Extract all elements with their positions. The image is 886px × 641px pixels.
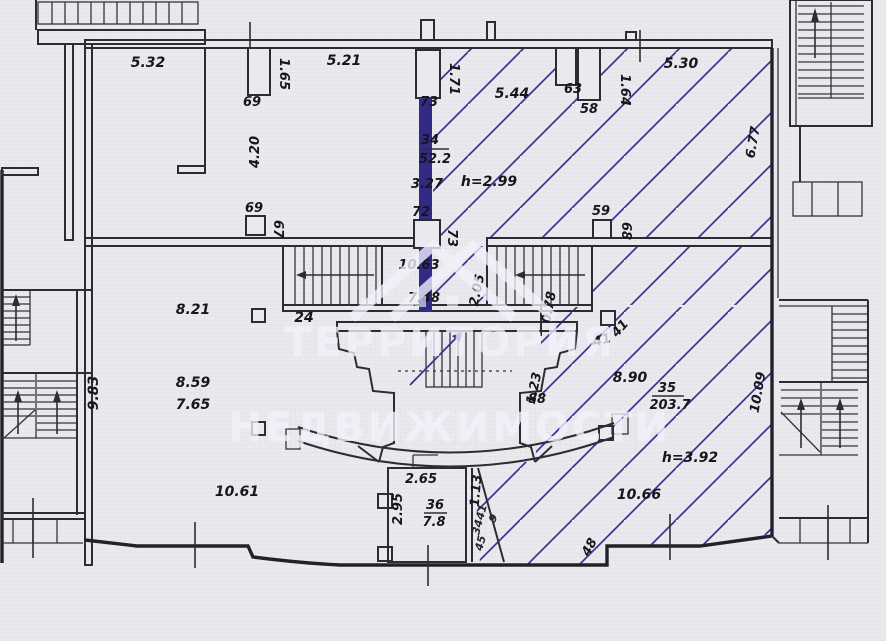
dimension-label: 1.64 bbox=[617, 74, 632, 106]
dimension-label: 5.21 bbox=[327, 53, 362, 69]
left-stair-lower-treads bbox=[2, 373, 77, 438]
room-area: 7.8 bbox=[422, 515, 445, 530]
dimension-label: 1.71 bbox=[446, 63, 461, 95]
room-dim: 7.65 bbox=[176, 397, 211, 413]
dimension-label: 1.65 bbox=[276, 58, 291, 90]
dimension-label: 4.20 bbox=[248, 136, 263, 169]
top-right-treads bbox=[798, 2, 864, 98]
column-59-68 bbox=[593, 220, 611, 238]
room-dim: 8.21 bbox=[176, 302, 211, 318]
room36-column bbox=[378, 547, 392, 561]
pilaster-label: 63 bbox=[564, 82, 582, 97]
ramp-arrow bbox=[296, 271, 306, 279]
room-dim: 8.90 bbox=[613, 370, 648, 386]
left-corridor-wall bbox=[65, 44, 73, 240]
column-label: 73 bbox=[444, 229, 459, 247]
mid-right-upper-treads bbox=[832, 314, 868, 378]
left-vestibule-cells bbox=[2, 519, 83, 543]
hatch-right-strip bbox=[592, 246, 772, 305]
vent-shaft bbox=[421, 20, 434, 40]
mid-wall-left bbox=[85, 238, 418, 246]
room36-column bbox=[378, 494, 392, 508]
column-73-top bbox=[416, 50, 440, 98]
room-dim: 10.66 bbox=[617, 487, 662, 503]
dimension-label: 5.44 bbox=[495, 86, 530, 102]
stair-up-arrow bbox=[14, 390, 22, 402]
column-label: 67 bbox=[270, 220, 285, 239]
right-vestibule bbox=[793, 182, 862, 216]
column-label: 69 bbox=[245, 201, 263, 216]
room-number: 35 bbox=[658, 381, 676, 396]
column-label: 68 bbox=[618, 222, 633, 240]
top-left-wall bbox=[38, 30, 205, 44]
room-dim: 10.61 bbox=[215, 484, 259, 500]
top-left-stair-treads bbox=[52, 2, 182, 24]
stair-up-arrow bbox=[797, 398, 805, 410]
dimension-label: 1.13 bbox=[468, 474, 486, 507]
top-left-stairs bbox=[38, 2, 198, 24]
ramp-arrow bbox=[515, 271, 525, 279]
column-label: 72 bbox=[412, 205, 430, 220]
mid-right-lower-treads bbox=[779, 382, 858, 455]
hall-column bbox=[252, 309, 265, 322]
room-dim: 8.59 bbox=[176, 375, 211, 391]
stair-up-arrow bbox=[836, 398, 844, 410]
watermark-line2: НЕДВИЖИМОСТИ bbox=[229, 405, 672, 451]
height-label: h=2.99 bbox=[461, 174, 517, 190]
left-wing bbox=[2, 44, 92, 565]
stair-up-arrow bbox=[53, 390, 61, 402]
column-69-67 bbox=[246, 216, 265, 235]
column-label: 59 bbox=[592, 204, 610, 219]
hall-left-wall bbox=[85, 44, 92, 565]
dimension-label: 3.27 bbox=[411, 177, 444, 192]
pilaster-label: 69 bbox=[243, 95, 261, 110]
column-label: 73 bbox=[420, 95, 438, 110]
room-number: 34 bbox=[421, 133, 439, 148]
dimension-label: 5.30 bbox=[664, 56, 699, 72]
right-wing bbox=[772, 0, 872, 560]
room-area: 52.2 bbox=[419, 152, 451, 167]
pilaster-63 bbox=[556, 48, 576, 85]
stair-up-arrow bbox=[811, 8, 819, 22]
dimension-label: 5.32 bbox=[131, 55, 166, 71]
pilaster-label: 58 bbox=[580, 102, 598, 117]
watermark-line1: ТЕРРИТОРИЯ bbox=[284, 320, 616, 366]
vent-shaft bbox=[487, 22, 495, 40]
dimension-label: 2.95 bbox=[391, 493, 406, 525]
dimension-label: 9.83 bbox=[86, 376, 102, 411]
stair-up-arrow bbox=[12, 294, 20, 306]
right-vestibule-cells bbox=[779, 518, 868, 543]
pilaster-69 bbox=[248, 48, 270, 95]
room-number: 36 bbox=[426, 498, 444, 513]
vent-shaft bbox=[626, 32, 636, 40]
floor-plan-canvas: 5.32 1.65 69 5.21 1.71 73 5.44 63 58 1.6… bbox=[0, 0, 886, 641]
partition-stub bbox=[178, 166, 205, 173]
height-label: h=3.92 bbox=[662, 450, 718, 466]
dimension-label: 2.65 bbox=[405, 472, 437, 487]
